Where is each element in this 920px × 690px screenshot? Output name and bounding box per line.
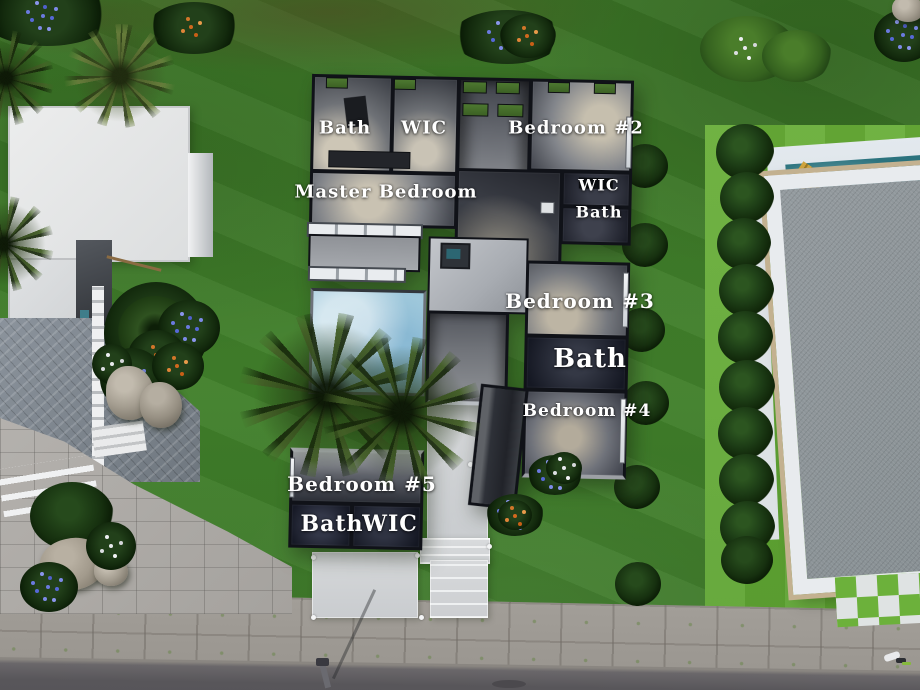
hot-tub-water	[446, 249, 460, 259]
lot-marker	[311, 615, 316, 620]
boulder	[140, 382, 182, 428]
white-flowers	[109, 544, 113, 548]
room-label-wic-2: WIC	[578, 176, 619, 195]
window	[496, 82, 520, 94]
room-label-bath-2: Bath	[576, 203, 623, 222]
left-neighbor-window	[80, 310, 89, 319]
conifer-tree	[720, 172, 774, 224]
hot-tub[interactable]	[440, 243, 471, 270]
orange-flowers	[189, 25, 193, 29]
room-label-wic-master: WIC	[401, 118, 447, 139]
lot-marker	[419, 615, 424, 620]
street-lamp-head	[316, 658, 329, 666]
toilet[interactable]	[540, 202, 554, 214]
leafy-bush	[762, 30, 832, 82]
window	[462, 103, 488, 117]
window	[394, 79, 416, 90]
window	[326, 77, 348, 88]
sims-lot-screenshot: Bath WIC Bedroom #2 Master Bedroom WIC B…	[0, 0, 920, 690]
boulder	[892, 0, 920, 22]
room-label-bedroom-4: Bedroom #4	[523, 401, 652, 421]
patio-window-band	[308, 266, 406, 283]
skateboard	[902, 662, 911, 665]
window	[594, 83, 616, 94]
room-label-wic-5: WIC	[362, 511, 418, 537]
orange-flowers	[513, 514, 517, 518]
window	[463, 81, 487, 93]
road-patch	[492, 680, 526, 688]
round-bush	[615, 562, 661, 606]
master-dresser[interactable]	[328, 150, 410, 169]
room-label-bedroom-2: Bedroom #2	[508, 118, 644, 139]
blue-flowers	[901, 33, 905, 37]
white-flowers	[743, 46, 747, 50]
room-label-bedroom-5: Bedroom #5	[287, 472, 437, 496]
window	[497, 104, 523, 118]
blue-flowers	[186, 325, 190, 329]
blue-flowers	[41, 14, 45, 18]
room-label-bath-5: Bath	[300, 511, 363, 537]
checkered-patio	[835, 573, 920, 628]
left-neighbor-roof-wing	[188, 153, 213, 257]
orange-flowers	[525, 34, 529, 38]
orange-flowers	[175, 364, 179, 368]
white-flowers	[110, 362, 114, 366]
white-flowers	[562, 466, 566, 470]
conifer-tree	[719, 360, 775, 414]
conifer-tree	[719, 454, 774, 507]
blue-flowers	[46, 585, 50, 589]
palm-tree	[64, 24, 176, 128]
conifer-tree	[719, 264, 774, 317]
round-bush	[721, 536, 773, 584]
conifer-tree	[718, 407, 773, 460]
room-label-bedroom-3: Bedroom #3	[505, 289, 655, 313]
conifer-tree	[717, 218, 771, 270]
conifer-tree	[718, 311, 773, 364]
room-label-bath-3: Bath	[553, 344, 627, 374]
window	[548, 82, 570, 93]
walkway-steps	[430, 560, 488, 618]
room-label-master-bedroom: Master Bedroom	[294, 182, 477, 203]
room-label-bath-master: Bath	[319, 118, 371, 139]
palm-tree	[322, 336, 482, 488]
